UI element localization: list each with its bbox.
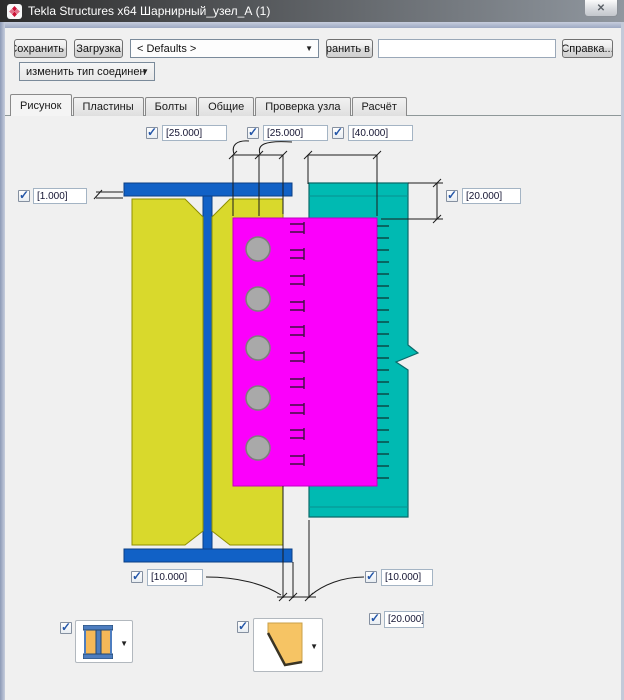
bolt bbox=[246, 386, 270, 410]
check-icon: ✓ bbox=[238, 621, 248, 631]
checkbox-plate-shape[interactable]: ✓ bbox=[237, 621, 249, 633]
bolt bbox=[246, 287, 270, 311]
checkbox-bottom-far-right[interactable]: ✓ bbox=[369, 613, 381, 625]
dim-top-left-input[interactable] bbox=[162, 125, 227, 141]
check-icon: ✓ bbox=[248, 127, 258, 137]
checkbox-left[interactable]: ✓ bbox=[18, 190, 30, 202]
check-icon: ✓ bbox=[370, 613, 380, 623]
dim-top-right-input[interactable] bbox=[348, 125, 413, 141]
chamfered-plate-icon bbox=[260, 621, 304, 669]
beam-profile-select[interactable]: ▼ bbox=[75, 620, 133, 663]
tab-analysis[interactable]: Расчёт bbox=[352, 97, 407, 116]
tab-strip: Рисунок Пластины Болты Общие Проверка уз… bbox=[10, 94, 408, 116]
checkbox-top-left[interactable]: ✓ bbox=[146, 127, 158, 139]
check-icon: ✓ bbox=[366, 571, 376, 581]
chevron-down-icon: ▼ bbox=[120, 639, 128, 648]
tab-joint-check[interactable]: Проверка узла bbox=[255, 97, 350, 116]
check-icon: ✓ bbox=[19, 190, 29, 200]
column-web bbox=[203, 196, 212, 549]
stiffener-plate-left bbox=[132, 199, 203, 545]
plate-shape-select[interactable]: ▼ bbox=[253, 618, 323, 672]
dim-right-input[interactable] bbox=[462, 188, 521, 204]
check-icon: ✓ bbox=[333, 127, 343, 137]
tab-plates[interactable]: Пластины bbox=[73, 97, 144, 116]
dim-top-middle-input[interactable] bbox=[263, 125, 328, 141]
bolt bbox=[246, 336, 270, 360]
tab-bolts[interactable]: Болты bbox=[145, 97, 197, 116]
checkbox-bottom-right[interactable]: ✓ bbox=[365, 571, 377, 583]
tab-general[interactable]: Общие bbox=[198, 97, 254, 116]
column-top-flange bbox=[124, 183, 292, 196]
dim-bottom-right-input[interactable] bbox=[381, 569, 433, 586]
check-icon: ✓ bbox=[447, 190, 457, 200]
checkbox-beam-profile[interactable]: ✓ bbox=[60, 622, 72, 634]
checkbox-bottom-left[interactable]: ✓ bbox=[131, 571, 143, 583]
check-icon: ✓ bbox=[147, 127, 157, 137]
check-icon: ✓ bbox=[132, 571, 142, 581]
bolt bbox=[246, 237, 270, 261]
dim-bottom-left-input[interactable] bbox=[147, 569, 203, 586]
column-bottom-flange bbox=[124, 549, 292, 562]
check-icon: ✓ bbox=[61, 622, 71, 632]
dim-bottom-far-right-input[interactable] bbox=[384, 611, 424, 628]
i-beam-section-icon bbox=[83, 625, 113, 659]
checkbox-right[interactable]: ✓ bbox=[446, 190, 458, 202]
checkbox-top-right[interactable]: ✓ bbox=[332, 127, 344, 139]
dim-left-input[interactable] bbox=[33, 188, 87, 204]
bolt bbox=[246, 436, 270, 460]
chevron-down-icon: ▼ bbox=[310, 642, 318, 651]
checkbox-top-middle[interactable]: ✓ bbox=[247, 127, 259, 139]
tab-drawing[interactable]: Рисунок bbox=[10, 94, 72, 116]
